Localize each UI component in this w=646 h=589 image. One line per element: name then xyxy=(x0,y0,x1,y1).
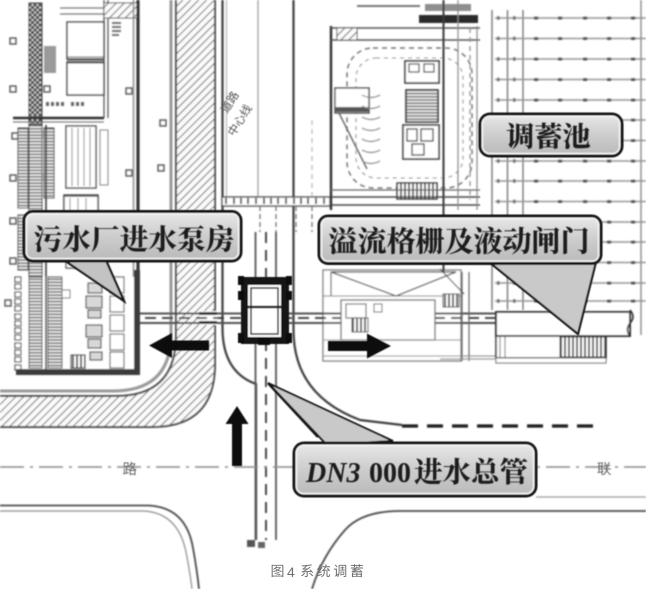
svg-text:4: 4 xyxy=(287,564,295,580)
svg-text:DN3: DN3 xyxy=(305,458,360,489)
svg-text:000: 000 xyxy=(369,458,411,489)
